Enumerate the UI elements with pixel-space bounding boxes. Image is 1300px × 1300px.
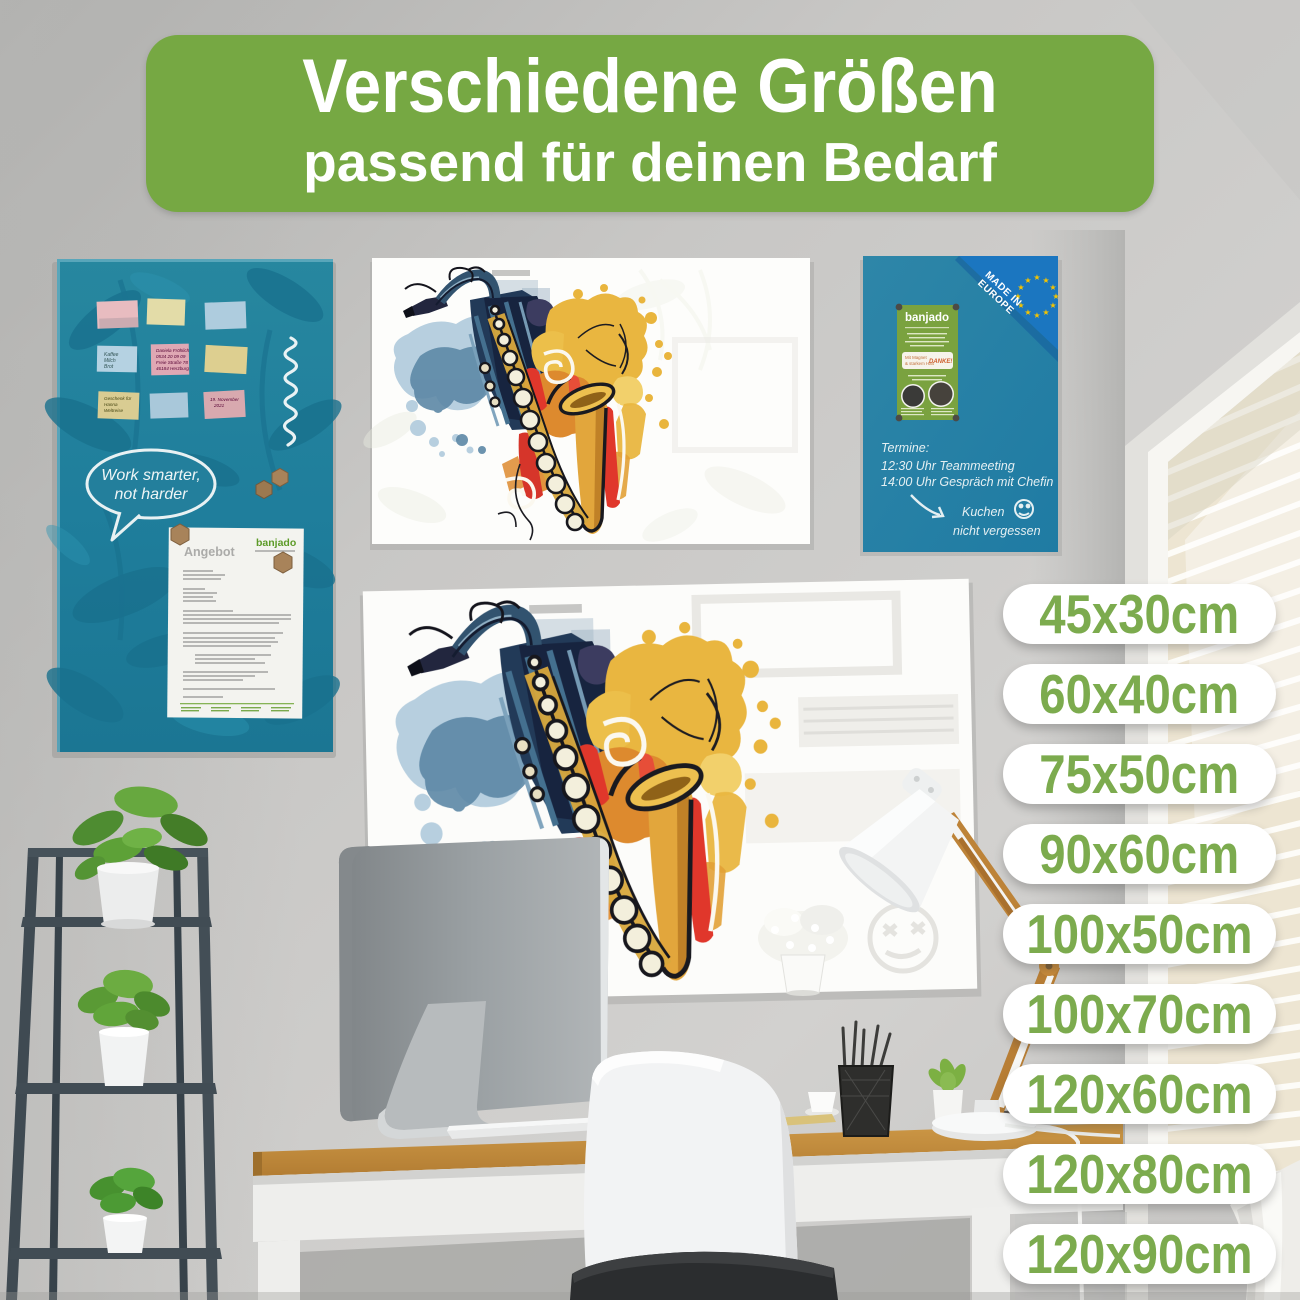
svg-text:Weltreise: Weltreise <box>104 408 124 413</box>
svg-text:Daniela Fröhlich: Daniela Fröhlich <box>156 348 190 353</box>
svg-text:14:00 Uhr Gespräch mit Chefin: 14:00 Uhr Gespräch mit Chefin <box>881 475 1053 489</box>
svg-text:nicht vergessen: nicht vergessen <box>953 524 1041 538</box>
svg-text:46184 Herzburg: 46184 Herzburg <box>156 366 189 371</box>
svg-text:banjado: banjado <box>256 537 296 549</box>
svg-text:★: ★ <box>1024 308 1031 317</box>
svg-text:Kuchen: Kuchen <box>962 505 1004 519</box>
svg-text:Freie Straße 78: Freie Straße 78 <box>156 360 188 365</box>
svg-text:Geschenk für: Geschenk für <box>104 396 132 401</box>
svg-text:12:30 Uhr Teammeeting: 12:30 Uhr Teammeeting <box>881 459 1015 473</box>
svg-text:★: ★ <box>1042 308 1049 317</box>
svg-text:0534 20 09 09: 0534 20 09 09 <box>156 354 186 359</box>
svg-text:★: ★ <box>1052 292 1059 301</box>
svg-text:Hanna: Hanna <box>104 402 118 407</box>
svg-text:2021: 2021 <box>213 403 225 408</box>
svg-text:Termine:: Termine: <box>881 441 929 455</box>
svg-text:★: ★ <box>1024 276 1031 285</box>
svg-text:Angebot: Angebot <box>184 545 236 559</box>
svg-text:★: ★ <box>1049 283 1056 292</box>
svg-text:banjado: banjado <box>905 312 949 324</box>
svg-text:Mit Magnet: Mit Magnet <box>905 355 927 360</box>
svg-text:★: ★ <box>1049 301 1056 310</box>
svg-text:Work smarter,: Work smarter, <box>101 467 201 484</box>
svg-text:★: ★ <box>1033 311 1040 320</box>
svg-text:not harder: not harder <box>115 486 189 503</box>
svg-text:DANKE!: DANKE! <box>929 359 952 365</box>
svg-text:Brot: Brot <box>104 364 114 370</box>
svg-text:★: ★ <box>1033 273 1040 282</box>
svg-text:19. November: 19. November <box>210 397 239 402</box>
